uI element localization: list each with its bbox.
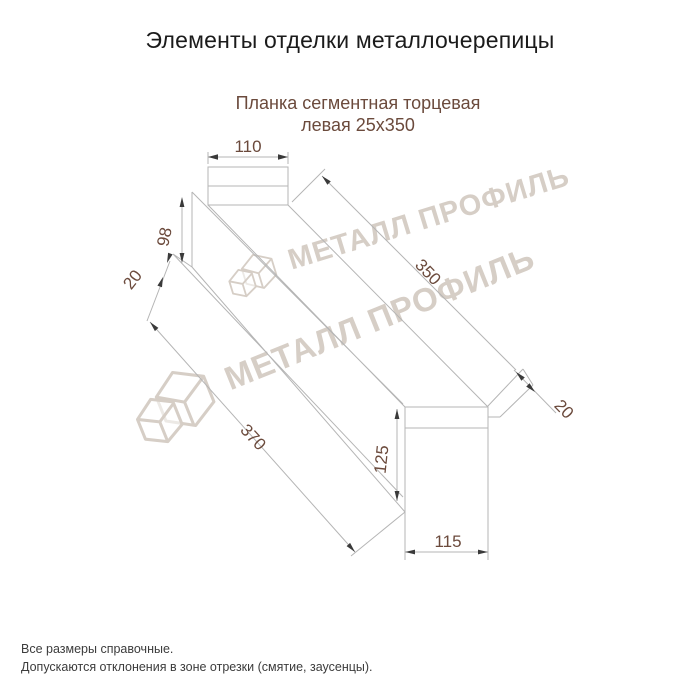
dimension-right-end-width: 115	[434, 532, 461, 551]
dimension-left-end-height: 98	[153, 226, 176, 248]
dimension-right-hem: 20	[551, 396, 578, 423]
drawing-lines	[147, 152, 556, 560]
product-name-line1: Планка сегментная торцевая	[8, 93, 700, 115]
dimension-bottom-length: 370	[236, 420, 269, 454]
page-title: Элементы отделки металлочерепицы	[0, 27, 700, 54]
dimension-arrowheads	[150, 154, 535, 554]
dimension-left-hem: 20	[119, 266, 146, 293]
product-name: Планка сегментная торцевая левая 25х350	[8, 93, 700, 136]
footer-note-1: Все размеры справочные.	[21, 641, 373, 659]
footer-notes: Все размеры справочные. Допускаются откл…	[21, 641, 373, 676]
footer-note-2: Допускаются отклонения в зоне отрезки (с…	[21, 659, 373, 677]
dimension-right-end-height: 125	[371, 444, 393, 474]
product-name-line2: левая 25х350	[8, 115, 700, 137]
dimension-top-face-width: 110	[234, 137, 261, 156]
dimension-top-length: 350	[411, 255, 444, 289]
product-drawing-page: МЕТАЛЛ ПРОФИЛЬ МЕТАЛЛ ПРОФИЛЬ 110 98 20 …	[0, 0, 700, 700]
